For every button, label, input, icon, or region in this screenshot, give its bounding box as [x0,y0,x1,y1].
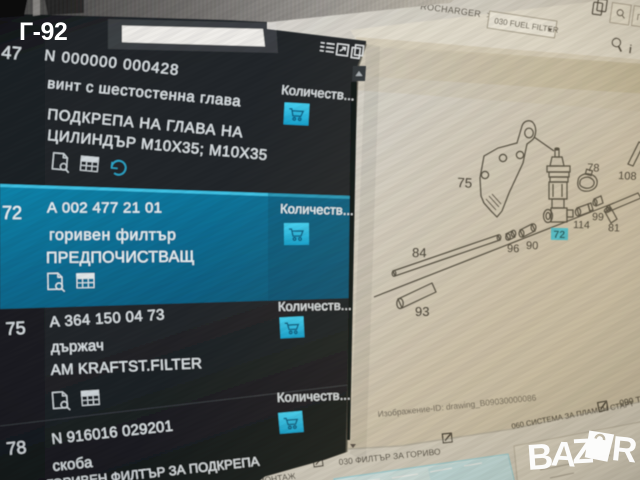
svg-text:Г-92: Г-92 [19,18,67,46]
svg-text:R: R [610,429,639,470]
